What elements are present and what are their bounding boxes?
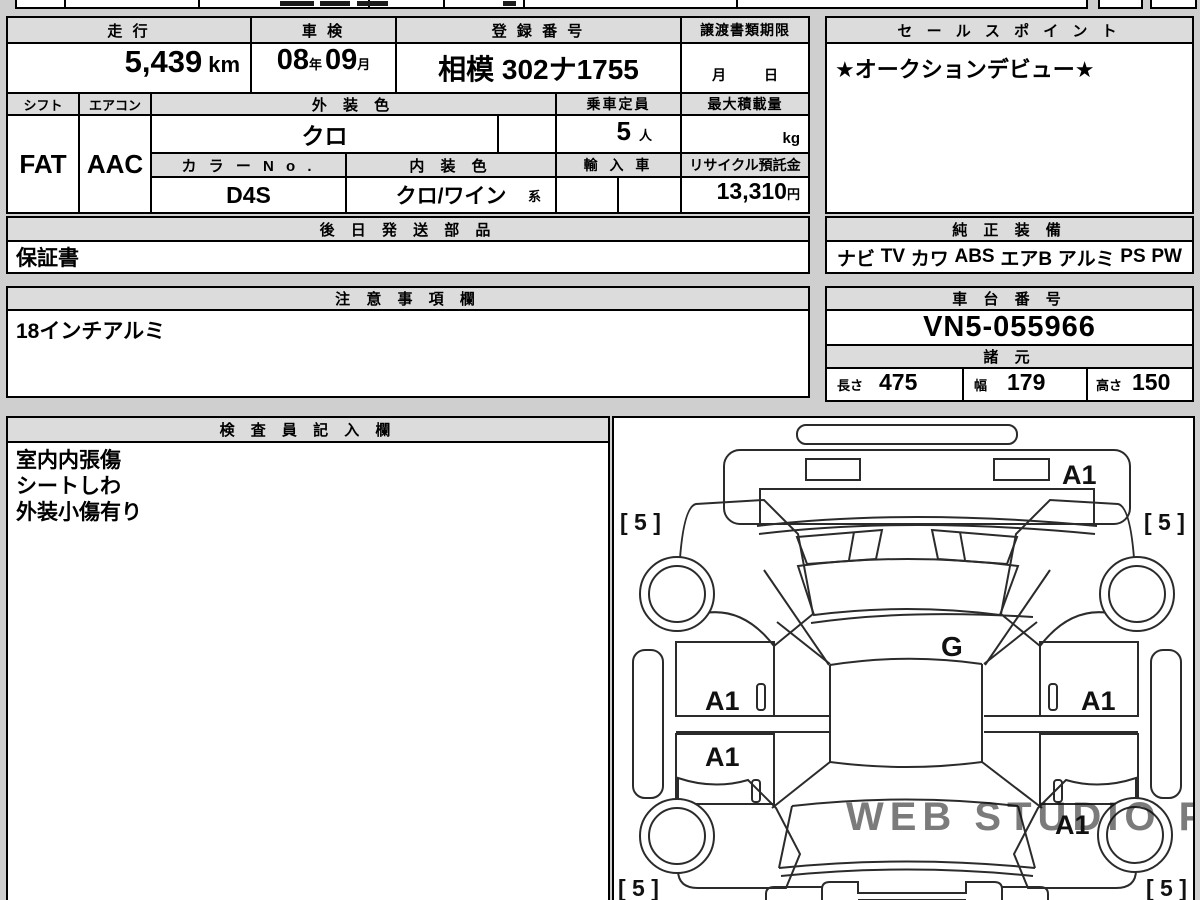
windshield (798, 559, 1018, 615)
max-load-unit: kg (782, 130, 800, 147)
aircon-text: AAC (87, 149, 143, 180)
chassis-number-header: 車 台 番 号 (825, 286, 1194, 311)
cautions-text: 18インチアルミ (8, 311, 808, 349)
sales-point-label: セ ー ル ス ポ イ ン ト (897, 20, 1121, 41)
capacity-number: 5 (617, 116, 631, 147)
inspection-month: 09 (325, 44, 357, 77)
mileage-unit: km (208, 52, 240, 78)
recycle-deposit-header: リサイクル預託金 (680, 152, 810, 178)
clipped-text-remnant (320, 1, 350, 6)
shift-label: シフト (23, 95, 62, 114)
watermark-text: WEB STUDIO PRO (846, 795, 1193, 839)
wheel-grade-rear-left: [ 5 ] (618, 875, 659, 900)
hood-edge-line (759, 525, 1095, 534)
front-plate-right (994, 459, 1049, 480)
inspection-value: 08 年 09 月 (250, 42, 397, 94)
front-plate-left (806, 459, 860, 480)
capacity-header: 乗車定員 (555, 92, 682, 116)
shift-text: FAT (19, 149, 66, 180)
auction-sheet: 走 行 車 検 登 録 番 号 譲渡書類期限 5,439 km 08 年 09 … (0, 0, 1200, 900)
roof-rear-arc (830, 762, 982, 767)
cowl-line (811, 614, 1033, 623)
height-label: 高さ (1096, 375, 1122, 394)
exterior-color-header: 外 装 色 (150, 92, 557, 116)
recycle-deposit-unit: 円 (787, 184, 800, 203)
damage-mark-glass: G (941, 631, 963, 662)
rear-left-wheel-inner (649, 808, 705, 864)
top-cutoff-row (15, 0, 1088, 9)
later-parts-value: 保証書 (6, 240, 810, 274)
front-left-wheel-inner (649, 566, 705, 622)
transfer-deadline-header: 譲渡書類期限 (680, 16, 810, 44)
rear-bumper-center (822, 882, 1002, 900)
interior-color-label: 内 装 色 (409, 155, 492, 176)
transfer-deadline-label: 譲渡書類期限 (700, 20, 790, 40)
day-label: 日 (764, 65, 778, 85)
car-damage-diagram: WEB STUDIO PRO A1 G A1 A1 A1 A1 [ 5 ] [ … (614, 418, 1193, 900)
registration-header: 登 録 番 号 (395, 16, 682, 44)
mileage-value: 5,439 km (6, 42, 252, 94)
top-cutoff-cell (1098, 0, 1143, 9)
c-pillar-left (772, 762, 830, 808)
equipment-item: カワ (911, 244, 949, 271)
divider (617, 178, 619, 212)
chassis-number-text: VN5-055966 (923, 311, 1096, 344)
registration-value: 相模 302ナ1755 (395, 42, 682, 94)
interior-color-suffix: 系 (528, 186, 541, 205)
imported-value (555, 176, 682, 214)
dimensions-header: 諸 元 (825, 344, 1194, 369)
max-load-label: 最大積載量 (708, 94, 783, 114)
later-parts-label: 後 日 発 送 部 品 (320, 219, 497, 240)
equipment-item: ナビ (837, 244, 875, 271)
damage-mark-right-rear-quarter: A1 (1055, 810, 1090, 840)
width-label: 幅 (974, 375, 987, 394)
dimensions-label: 諸 元 (983, 346, 1035, 367)
wheel-grade-rear-right: [ 5 ] (1146, 875, 1187, 900)
mileage-number: 5,439 (125, 44, 203, 80)
trunk-arc-inner (781, 870, 1033, 877)
width-value: 179 (1007, 369, 1045, 396)
imported-label: 輸 入 車 (584, 155, 654, 175)
left-rocker-panel (633, 650, 663, 798)
interior-color-value: クロ/ワイン 系 (345, 176, 557, 214)
exterior-color-text: クロ (302, 117, 348, 151)
length-label: 長さ (837, 375, 863, 394)
inspector-note-line: 外装小傷有り (16, 500, 600, 526)
trunk-arc (779, 862, 1035, 869)
inspector-notes-header: 検 査 員 記 入 欄 (6, 416, 610, 443)
cautions-value: 18インチアルミ (6, 309, 810, 398)
capacity-value: 5 人 (555, 114, 682, 154)
right-sill-strip (984, 716, 1138, 732)
front-right-wheel-inner (1109, 566, 1165, 622)
damage-diagram-box: WEB STUDIO PRO A1 G A1 A1 A1 A1 [ 5 ] [ … (612, 416, 1195, 900)
capacity-label: 乗車定員 (587, 94, 651, 114)
damage-mark-left-rear-door: A1 (705, 742, 740, 772)
divider (523, 0, 525, 7)
divider (198, 0, 200, 7)
imported-header: 輸 入 車 (555, 152, 682, 178)
inspector-note-line: 室内内張傷 (16, 448, 600, 474)
inspection-year-suffix: 年 (309, 54, 322, 73)
divider (736, 0, 738, 7)
clipped-text-remnant (503, 1, 516, 6)
plate-number: 相模 302ナ1755 (438, 48, 639, 88)
mileage-label: 走 行 (107, 20, 150, 41)
genuine-equipment-label: 純 正 装 備 (952, 219, 1067, 240)
inspection-header: 車 検 (250, 16, 397, 44)
aircon-value: AAC (78, 114, 152, 214)
wheel-grade-front-left: [ 5 ] (620, 509, 661, 535)
length-cell: 長さ 475 (825, 367, 964, 402)
exterior-color-label: 外 装 色 (312, 94, 395, 115)
length-value: 475 (879, 369, 917, 396)
inspector-note-line: シートしわ (16, 474, 600, 500)
interior-color-text: クロ/ワイン (396, 180, 507, 210)
height-value: 150 (1132, 369, 1170, 396)
later-parts-header: 後 日 発 送 部 品 (6, 216, 810, 242)
recycle-deposit-label: リサイクル預託金 (689, 155, 800, 175)
sales-point-header: セ ー ル ス ポ イ ン ト (825, 16, 1194, 44)
damage-mark-front-bumper: A1 (1062, 460, 1097, 490)
recycle-deposit-value: 13,310 円 (680, 176, 810, 214)
chassis-number-label: 車 台 番 号 (952, 288, 1067, 309)
right-rocker-panel (1151, 650, 1181, 798)
interior-color-header: 内 装 色 (345, 152, 557, 178)
top-cutoff-cell (1150, 0, 1197, 9)
inspection-year: 08 (277, 44, 309, 77)
width-cell: 幅 179 (962, 367, 1088, 402)
height-cell: 高さ 150 (1086, 367, 1194, 402)
transfer-deadline-value: 月 日 (680, 42, 810, 94)
later-parts-text: 保証書 (16, 242, 79, 272)
color-no-value: D4S (150, 176, 347, 214)
aircon-header: エアコン (78, 92, 152, 116)
color-no-label: カ ラ ー N o . (181, 155, 315, 176)
cautions-header: 注 意 事 項 欄 (6, 286, 810, 311)
inspector-notes-body: 室内内張傷 シートしわ 外装小傷有り (6, 441, 610, 900)
inspection-label: 車 検 (302, 20, 345, 41)
capacity-unit: 人 (639, 125, 652, 144)
color-no-header: カ ラ ー N o . (150, 152, 347, 178)
recycle-deposit-number: 13,310 (717, 178, 787, 205)
genuine-equipment-value: ナビ TV カワ ABS エアB アルミ PS PW (825, 240, 1194, 274)
cautions-label: 注 意 事 項 欄 (335, 288, 481, 309)
door-handle (1049, 684, 1057, 710)
equipment-item: アルミ (1058, 244, 1115, 271)
mileage-header: 走 行 (6, 16, 252, 44)
month-label: 月 (712, 65, 726, 85)
clipped-text-remnant (280, 1, 314, 6)
registration-label: 登 録 番 号 (492, 20, 586, 41)
inspection-month-suffix: 月 (357, 54, 370, 73)
inspector-notes-label: 検 査 員 記 入 欄 (220, 419, 397, 440)
equipment-item: ABS (954, 246, 994, 268)
equipment-item: PS (1120, 246, 1145, 268)
max-load-value: kg (680, 114, 810, 154)
wheel-grade-front-right: [ 5 ] (1144, 509, 1185, 535)
color-no-text: D4S (226, 182, 271, 209)
door-handle (757, 684, 765, 710)
chassis-number-value: VN5-055966 (825, 309, 1194, 346)
divider (64, 0, 66, 7)
damage-mark-left-front-door: A1 (705, 686, 740, 716)
divider (443, 0, 445, 7)
equipment-item: エアB (1000, 244, 1052, 271)
genuine-equipment-header: 純 正 装 備 (825, 216, 1194, 242)
headlight-right-divider (960, 532, 965, 560)
max-load-header: 最大積載量 (680, 92, 810, 116)
shift-header: シフト (6, 92, 80, 116)
damage-mark-right-front-door: A1 (1081, 686, 1116, 716)
headlight-left-divider (849, 532, 854, 560)
sales-point-body: ★オークションデビュー★ (825, 42, 1194, 214)
exterior-color-value: クロ (150, 114, 499, 154)
equipment-item: PW (1151, 246, 1182, 268)
sales-point-text: ★オークションデビュー★ (827, 44, 1192, 92)
exterior-color-subcell (497, 114, 557, 154)
aircon-label: エアコン (89, 95, 141, 114)
shift-value: FAT (6, 114, 80, 214)
left-sill-strip (676, 716, 830, 732)
front-bumper-top (797, 425, 1017, 444)
clipped-text-remnant (357, 1, 388, 6)
equipment-item: TV (881, 246, 905, 268)
